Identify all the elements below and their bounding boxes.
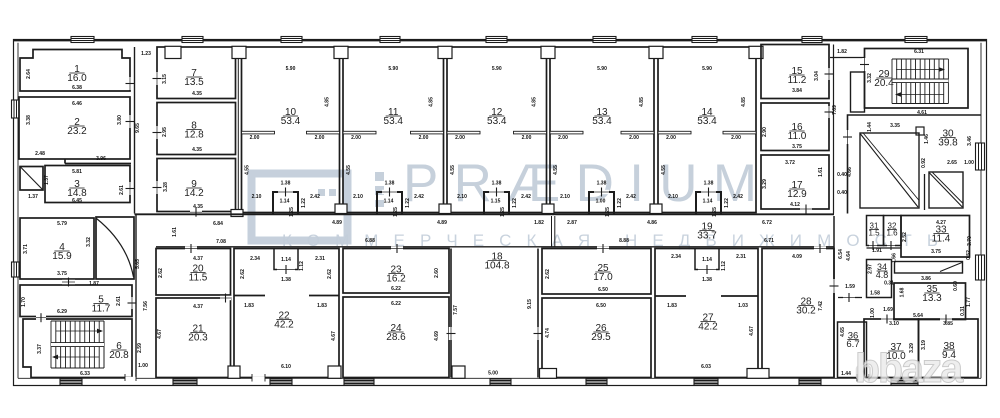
svg-text:2.87: 2.87 [567,220,577,226]
svg-text:6.50: 6.50 [596,303,606,309]
svg-text:4.89: 4.89 [332,220,342,226]
svg-text:4.67: 4.67 [749,326,755,336]
svg-text:6.88: 6.88 [365,238,375,244]
svg-text:1.14: 1.14 [281,257,291,263]
svg-text:4.55: 4.55 [553,165,559,175]
svg-text:9.65: 9.65 [135,123,141,133]
svg-text:4.67: 4.67 [157,329,163,339]
svg-text:3.32: 3.32 [86,237,92,247]
svg-text:4.55: 4.55 [661,165,667,175]
svg-text:6.45: 6.45 [72,198,82,204]
svg-text:0.60: 0.60 [953,281,959,291]
svg-text:1.22: 1.22 [301,198,307,208]
svg-text:53.4: 53.4 [487,116,507,127]
svg-text:1.82: 1.82 [837,49,847,55]
svg-text:2.60: 2.60 [434,268,440,278]
svg-text:4.85: 4.85 [639,97,645,107]
svg-text:3.35: 3.35 [890,123,900,129]
svg-text:23.2: 23.2 [67,126,87,137]
svg-text:30.2: 30.2 [796,305,816,316]
svg-text:11.4: 11.4 [932,233,951,244]
svg-text:104.8: 104.8 [484,260,509,271]
svg-text:4.85: 4.85 [532,97,538,107]
svg-text:2.62: 2.62 [240,269,246,279]
svg-text:1.22: 1.22 [724,198,730,208]
svg-text:1.38: 1.38 [492,180,502,186]
svg-text:1.83: 1.83 [317,303,327,309]
svg-text:2.00: 2.00 [455,135,465,141]
svg-text:2.00: 2.00 [419,135,429,141]
svg-text:0.40: 0.40 [837,172,847,178]
svg-text:5.90: 5.90 [492,66,502,72]
svg-text:1.37: 1.37 [28,194,38,200]
svg-text:20.8: 20.8 [109,350,129,361]
svg-text:1.59: 1.59 [845,284,855,290]
svg-text:11.2: 11.2 [788,75,807,86]
svg-text:6.03: 6.03 [701,364,711,370]
svg-text:1.68: 1.68 [900,287,906,297]
svg-text:0.40: 0.40 [837,190,847,196]
svg-text:2.65: 2.65 [947,160,957,166]
svg-text:3.70: 3.70 [967,236,973,246]
svg-text:4.86: 4.86 [647,220,657,226]
svg-text:4.27: 4.27 [936,220,946,226]
svg-text:2.00: 2.00 [351,135,361,141]
svg-text:2.48: 2.48 [35,151,45,157]
svg-text:2.42: 2.42 [626,194,636,200]
svg-text:4.09: 4.09 [792,254,802,260]
svg-text:0.31: 0.31 [884,281,894,287]
svg-text:6.71: 6.71 [764,238,774,244]
svg-text:1.22: 1.22 [405,198,411,208]
svg-text:2.00: 2.00 [558,135,568,141]
svg-text:39.8: 39.8 [938,137,958,148]
svg-text:1.46: 1.46 [924,134,930,144]
svg-text:13.5: 13.5 [184,77,204,88]
svg-text:6.22: 6.22 [391,286,401,292]
svg-text:1.00: 1.00 [870,308,876,318]
svg-text:4.67: 4.67 [331,331,337,341]
svg-text:1.03: 1.03 [738,303,748,309]
svg-text:1.83: 1.83 [667,303,677,309]
svg-text:2.42: 2.42 [733,194,743,200]
svg-text:6.22: 6.22 [391,301,401,307]
svg-text:1.25: 1.25 [289,207,295,217]
svg-text:17.0: 17.0 [593,272,613,283]
svg-text:6.33: 6.33 [80,371,90,377]
svg-text:16.0: 16.0 [67,73,87,84]
svg-text:4.85: 4.85 [429,97,435,107]
svg-text:2.62: 2.62 [158,268,164,278]
svg-text:1.38: 1.38 [597,180,607,186]
svg-text:2.34: 2.34 [250,256,260,262]
svg-text:1.6: 1.6 [886,229,898,238]
svg-text:14.2: 14.2 [184,188,204,199]
svg-text:2.59: 2.59 [137,343,143,353]
svg-text:7.08: 7.08 [216,239,226,245]
svg-text:7.42: 7.42 [818,301,824,311]
svg-text:20.3: 20.3 [188,332,208,343]
svg-text:4.37: 4.37 [193,256,203,262]
svg-text:0.92: 0.92 [921,158,927,168]
svg-text:1.22: 1.22 [617,198,623,208]
svg-text:1.61: 1.61 [818,167,824,177]
svg-text:1.25: 1.25 [393,207,399,217]
svg-text:0.31: 0.31 [960,306,966,316]
svg-text:2.31: 2.31 [736,254,746,260]
svg-text:1.38: 1.38 [704,180,714,186]
svg-text:4.85: 4.85 [741,97,747,107]
svg-text:6.10: 6.10 [281,364,291,370]
svg-text:6.46: 6.46 [72,101,82,107]
svg-text:53.4: 53.4 [697,116,717,127]
svg-text:4.64: 4.64 [846,251,852,261]
svg-text:2.31: 2.31 [315,256,325,262]
svg-text:7.56: 7.56 [143,301,149,311]
svg-text:1.00: 1.00 [138,363,148,369]
svg-text:7.57: 7.57 [453,305,459,315]
svg-text:2.10: 2.10 [560,194,570,200]
svg-text:2.62: 2.62 [545,269,551,279]
svg-text:4.55: 4.55 [450,165,456,175]
svg-text:9.15: 9.15 [527,299,533,309]
svg-text:5.00: 5.00 [488,371,498,377]
svg-text:3.85: 3.85 [943,321,953,327]
svg-text:6.31: 6.31 [914,49,924,55]
svg-text:3.96: 3.96 [96,156,106,162]
svg-text:1.12: 1.12 [299,261,305,271]
svg-text:11.0: 11.0 [788,131,807,142]
svg-text:4.35: 4.35 [192,91,202,97]
svg-text:7.69: 7.69 [832,105,838,115]
svg-text:28.6: 28.6 [386,332,406,343]
svg-text:1.87: 1.87 [89,281,99,287]
svg-text:1.14: 1.14 [702,257,712,263]
svg-text:2.42: 2.42 [414,194,424,200]
svg-text:42.2: 42.2 [698,321,718,332]
svg-text:3.15: 3.15 [162,74,168,84]
svg-text:5.65: 5.65 [135,259,141,269]
svg-text:1.00: 1.00 [964,160,974,166]
svg-text:2.00: 2.00 [315,135,325,141]
svg-text:3.80: 3.80 [117,115,123,125]
svg-text:2.95: 2.95 [162,127,168,137]
svg-text:2.42: 2.42 [310,194,320,200]
svg-text:1.82: 1.82 [534,220,544,226]
svg-text:3.04: 3.04 [814,71,820,81]
svg-text:1.61: 1.61 [172,227,178,237]
svg-text:5.90: 5.90 [702,66,712,72]
svg-text:6.84: 6.84 [213,221,223,227]
svg-text:4.55: 4.55 [245,165,251,175]
svg-text:1.37: 1.37 [44,175,50,185]
svg-text:3.71: 3.71 [23,244,29,254]
svg-text:1.00: 1.00 [596,199,606,205]
svg-text:3.75: 3.75 [931,249,941,255]
svg-text:1.91: 1.91 [872,248,882,254]
svg-text:6.50: 6.50 [598,287,608,293]
svg-text:3.46: 3.46 [967,136,973,146]
svg-text:1.25: 1.25 [712,207,718,217]
svg-text:2.61: 2.61 [119,185,125,195]
svg-text:6.54: 6.54 [838,249,844,259]
svg-text:4.74: 4.74 [545,328,551,338]
svg-text:2.10: 2.10 [252,194,262,200]
svg-text:1.5: 1.5 [868,229,880,238]
svg-text:2.62: 2.62 [327,269,333,279]
svg-text:1.23: 1.23 [141,51,151,57]
svg-text:2.97: 2.97 [868,264,874,274]
svg-text:5.90: 5.90 [597,66,607,72]
svg-text:53.4: 53.4 [592,116,612,127]
svg-text:20.4: 20.4 [874,78,894,89]
svg-text:33.7: 33.7 [697,230,717,241]
svg-text:4.35: 4.35 [193,204,203,210]
svg-text:2.00: 2.00 [666,135,676,141]
svg-text:4.65: 4.65 [840,327,846,337]
svg-text:1.12: 1.12 [721,261,727,271]
svg-text:13.3: 13.3 [922,293,942,304]
svg-text:16.2: 16.2 [386,273,406,284]
svg-text:3.29: 3.29 [762,179,768,189]
svg-text:1.22: 1.22 [512,198,518,208]
svg-text:1.14: 1.14 [703,199,713,205]
svg-text:6.29: 6.29 [57,309,67,315]
svg-text:5.90: 5.90 [388,66,398,72]
svg-text:3.37: 3.37 [37,344,43,354]
svg-text:2.10: 2.10 [457,194,467,200]
svg-text:2.10: 2.10 [353,194,363,200]
svg-text:3.84: 3.84 [792,88,802,94]
svg-text:1.15: 1.15 [491,199,501,205]
svg-text:4.69: 4.69 [434,331,440,341]
svg-text:1.83: 1.83 [244,303,254,309]
svg-text:5.64: 5.64 [913,313,923,319]
svg-text:6.72: 6.72 [762,220,772,226]
svg-text:3.28: 3.28 [163,182,169,192]
svg-text:3.72: 3.72 [785,160,795,166]
svg-text:1.44: 1.44 [841,371,851,377]
svg-text:8.88: 8.88 [619,238,629,244]
svg-text:3.75: 3.75 [57,271,67,277]
svg-text:42.2: 42.2 [274,319,294,330]
svg-text:29.5: 29.5 [591,332,611,343]
svg-text:2.42: 2.42 [521,194,531,200]
svg-text:4.35: 4.35 [192,147,202,153]
svg-text:1.38: 1.38 [281,277,291,283]
svg-text:3.10: 3.10 [889,321,899,327]
svg-text:1.25: 1.25 [500,207,506,217]
svg-text:6.38: 6.38 [72,85,82,91]
svg-text:11.5: 11.5 [189,272,208,283]
svg-text:2.52: 2.52 [902,232,908,242]
svg-text:1.25: 1.25 [605,207,611,217]
svg-text:53.4: 53.4 [281,116,301,127]
svg-text:2.00: 2.00 [731,135,741,141]
svg-text:12.8: 12.8 [184,129,204,140]
svg-text:2.34: 2.34 [671,254,681,260]
svg-text:3.32: 3.32 [867,73,873,83]
svg-text:4.37: 4.37 [193,304,203,310]
svg-text:3.75: 3.75 [792,144,802,150]
svg-text:1.38: 1.38 [385,180,395,186]
svg-text:2.00: 2.00 [522,135,532,141]
svg-text:4.8: 4.8 [876,270,889,280]
svg-text:4.85: 4.85 [325,97,331,107]
svg-text:bbaza: bbaza [855,345,964,391]
svg-text:1.44: 1.44 [867,122,873,132]
svg-text:1.14: 1.14 [384,199,394,205]
svg-text:1.58: 1.58 [870,291,880,297]
svg-text:1.38: 1.38 [281,180,291,186]
svg-text:11.7: 11.7 [92,303,111,314]
svg-text:0.52: 0.52 [966,250,972,260]
svg-text:4.12: 4.12 [790,202,800,208]
svg-text:4.55: 4.55 [346,165,352,175]
svg-text:2.10: 2.10 [668,194,678,200]
svg-text:53.4: 53.4 [384,116,404,127]
svg-text:2.00: 2.00 [250,135,260,141]
svg-text:12.9: 12.9 [787,189,807,200]
svg-text:1.70: 1.70 [21,297,27,307]
svg-text:1.69: 1.69 [883,307,893,313]
svg-text:5.90: 5.90 [286,66,296,72]
svg-text:5.81: 5.81 [72,169,82,175]
svg-text:1.14: 1.14 [280,199,290,205]
svg-text:2.00: 2.00 [629,135,639,141]
svg-text:3.38: 3.38 [26,115,32,125]
svg-text:2.64: 2.64 [26,69,32,79]
svg-text:1.77: 1.77 [966,297,972,307]
svg-text:2.61: 2.61 [116,296,122,306]
svg-text:1.38: 1.38 [702,277,712,283]
svg-text:4.89: 4.89 [437,220,447,226]
svg-text:5.79: 5.79 [57,221,67,227]
svg-text:3.86: 3.86 [921,276,931,282]
svg-text:2.90: 2.90 [762,127,768,137]
svg-text:15.9: 15.9 [52,251,72,262]
